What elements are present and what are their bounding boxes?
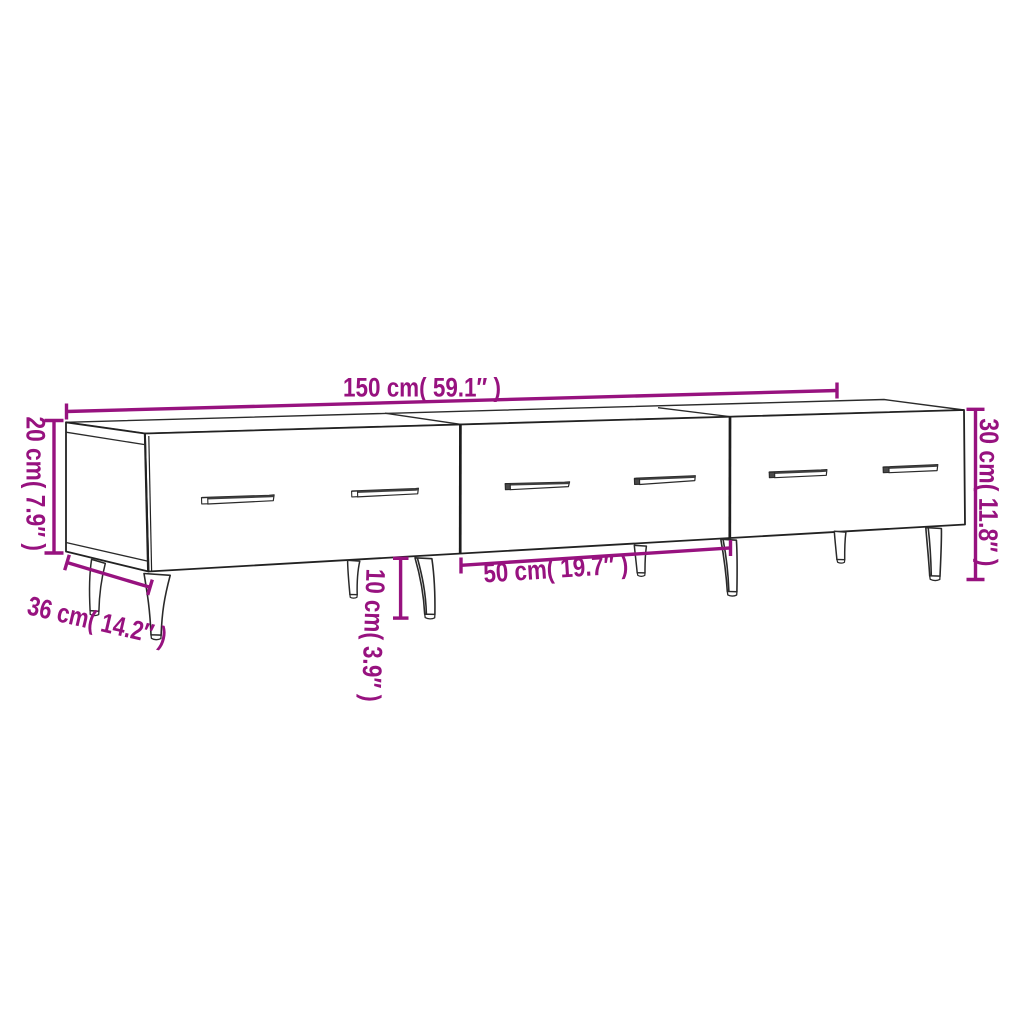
svg-text:30 cm( 11.8″ ): 30 cm( 11.8″ ): [973, 418, 1004, 566]
svg-text:20 cm( 7.9″ ): 20 cm( 7.9″ ): [21, 417, 51, 552]
svg-text:10 cm( 3.9″ ): 10 cm( 3.9″ ): [356, 568, 391, 702]
svg-text:150 cm( 59.1″ ): 150 cm( 59.1″ ): [343, 373, 501, 403]
